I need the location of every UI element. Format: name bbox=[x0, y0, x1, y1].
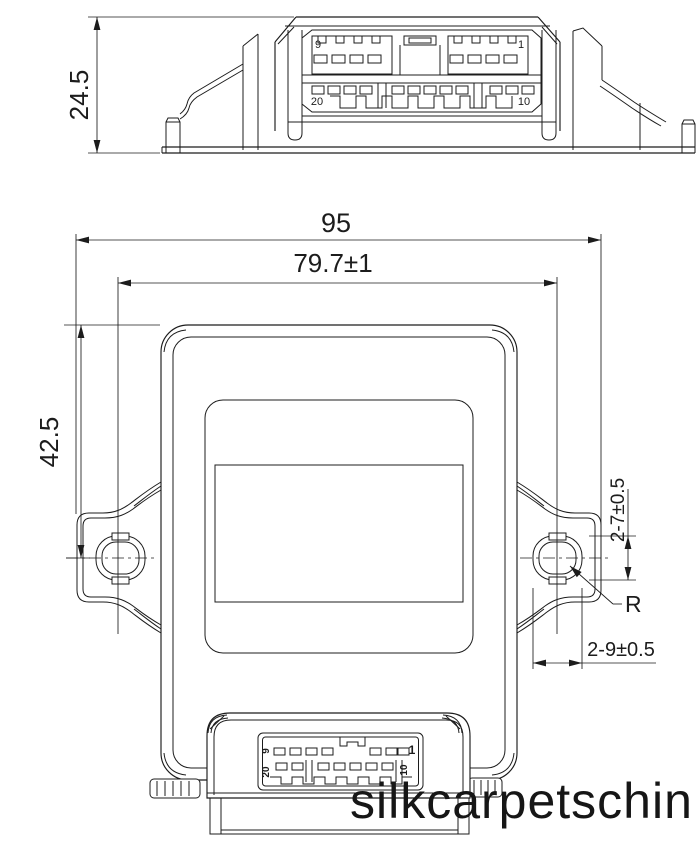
dim-hole-height-label: 2-7±0.5 bbox=[608, 478, 629, 542]
dimension-42-5: 42.5 bbox=[34, 325, 160, 558]
connector-pin-label-20: 20 bbox=[261, 766, 272, 778]
engineering-drawing-page: 9 1 20 10 24.5 bbox=[0, 0, 700, 846]
top-view-latch bbox=[400, 36, 440, 75]
front-view-drawing: 9 1 20 10 95 79.7±1 42. bbox=[34, 208, 656, 834]
top-view-pin-label-9: 9 bbox=[315, 39, 321, 51]
top-view-pin-label-10: 10 bbox=[518, 96, 530, 108]
module-body bbox=[161, 325, 517, 780]
mounting-ear-left bbox=[77, 482, 161, 633]
dimension-79-7: 79.7±1 bbox=[118, 248, 557, 634]
ecu-technical-drawing: 9 1 20 10 24.5 bbox=[0, 0, 700, 846]
top-view-pin-block-right bbox=[448, 36, 528, 74]
dim-hole-width-label: 2-9±0.5 bbox=[587, 639, 655, 661]
radius-callout: R bbox=[570, 566, 642, 617]
dim-hole-spacing-label: 79.7±1 bbox=[293, 248, 372, 278]
dimension-2-7: 2-7±0.5 bbox=[589, 478, 636, 580]
radius-label: R bbox=[625, 591, 642, 617]
dim-top-to-hole-label: 42.5 bbox=[34, 417, 64, 468]
top-view-pin-label-1: 1 bbox=[518, 39, 524, 51]
dimension-24-5: 24.5 bbox=[64, 17, 294, 153]
bottom-clip-left bbox=[150, 779, 200, 798]
connector-pin-label-9: 9 bbox=[261, 748, 272, 754]
top-view-pin-label-20: 20 bbox=[311, 96, 323, 108]
mounting-ear-right bbox=[517, 482, 601, 633]
top-view-pin-block-left bbox=[312, 36, 392, 74]
dim-overall-width-label: 95 bbox=[321, 208, 351, 238]
top-view-drawing: 9 1 20 10 24.5 bbox=[64, 17, 695, 153]
watermark-text: silkcarpetschin bbox=[350, 773, 693, 829]
dim-height-label: 24.5 bbox=[64, 70, 94, 121]
connector-pin-label-1: 1 bbox=[409, 743, 416, 757]
top-view-pin-row-bottom bbox=[312, 83, 534, 108]
